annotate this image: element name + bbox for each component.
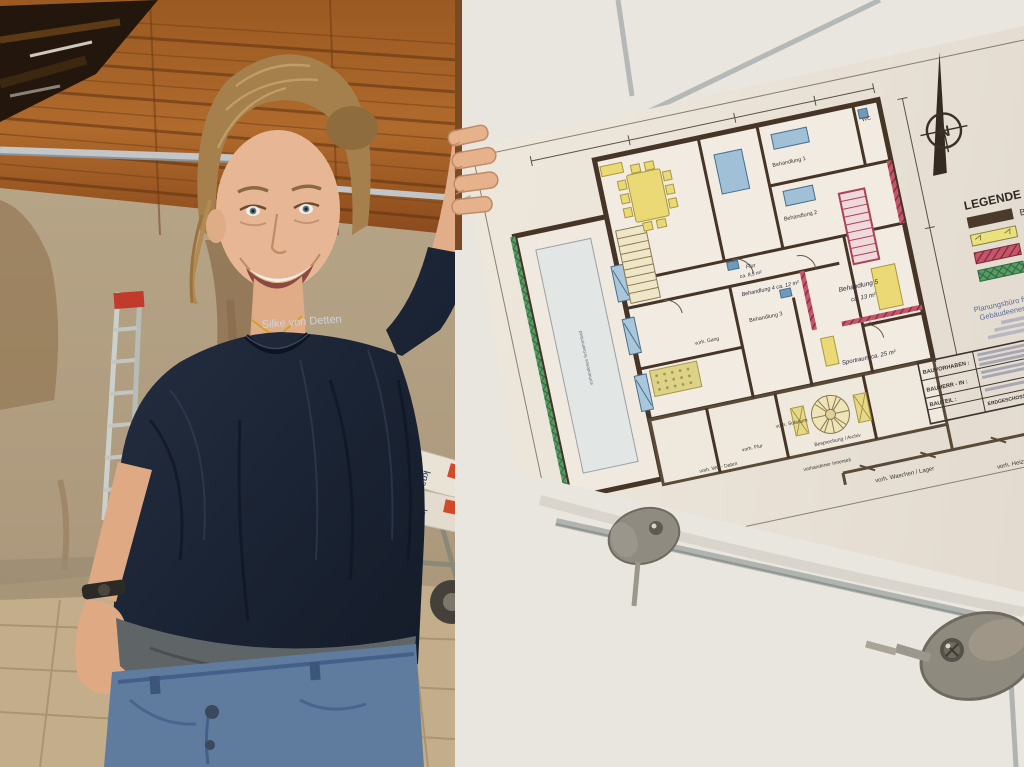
legend-swatch-bestand xyxy=(967,208,1014,228)
svg-text:Bestand: Bestand xyxy=(1019,201,1024,218)
title-block: BAUVORHABEN : BAUHERR - IN : BAUTEIL : E… xyxy=(918,322,1024,423)
legend-swatch-abbruch xyxy=(970,226,1017,246)
face xyxy=(216,130,340,290)
plan-legend: LEGENDE : Bestand Abbruch Neue Bauteile … xyxy=(963,176,1024,281)
ear xyxy=(206,209,226,243)
legend-swatch-daemm xyxy=(978,261,1024,281)
svg-text:vorh. Waschen / Lager: vorh. Waschen / Lager xyxy=(875,466,935,484)
legend-title: LEGENDE : xyxy=(963,186,1024,213)
svg-text:vorh. Heizung: vorh. Heizung xyxy=(997,457,1024,471)
legend-swatch-neue xyxy=(974,243,1021,263)
panel-edge xyxy=(455,0,462,250)
compass-n: N xyxy=(938,123,952,142)
company-block: Planungsbüro für Ha… Gebäudeenergieberat… xyxy=(973,281,1024,341)
photo-scene: knauf knauf xyxy=(0,0,1024,767)
svg-text:vorhandener Innenteil: vorhandener Innenteil xyxy=(803,457,852,473)
